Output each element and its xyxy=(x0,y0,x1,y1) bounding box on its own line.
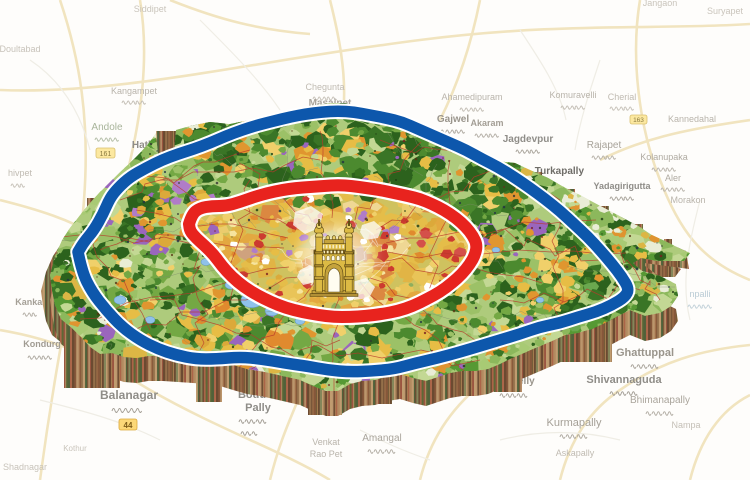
svg-text:Kurmapally: Kurmapally xyxy=(546,417,602,429)
svg-text:44: 44 xyxy=(124,421,133,430)
svg-text:Suryapet: Suryapet xyxy=(707,6,744,16)
svg-text:Kolanupaka: Kolanupaka xyxy=(640,152,688,162)
svg-text:Nampa: Nampa xyxy=(671,420,700,430)
svg-text:Shadnagar: Shadnagar xyxy=(3,462,47,472)
svg-text:Ghattuppal: Ghattuppal xyxy=(616,347,674,359)
svg-text:Rajapet: Rajapet xyxy=(587,140,622,151)
svg-text:npalli: npalli xyxy=(689,289,710,299)
svg-text:Andole: Andole xyxy=(91,122,123,133)
svg-text:Kangampet: Kangampet xyxy=(111,86,158,96)
svg-text:Shivannaguda: Shivannaguda xyxy=(586,374,662,386)
svg-text:Ahamedipuram: Ahamedipuram xyxy=(441,92,502,102)
svg-text:Kannedahal: Kannedahal xyxy=(668,114,716,124)
svg-text:Kankal: Kankal xyxy=(15,297,45,307)
svg-text:Kothur: Kothur xyxy=(63,444,87,453)
svg-text:Gajwel: Gajwel xyxy=(437,114,469,125)
svg-text:Venkat: Venkat xyxy=(312,437,340,447)
svg-text:Bhimanapally: Bhimanapally xyxy=(630,395,690,406)
svg-text:Amangal: Amangal xyxy=(362,433,401,444)
svg-text:Chegunta: Chegunta xyxy=(305,82,344,92)
svg-text:Yadagirigutta: Yadagirigutta xyxy=(593,181,651,191)
svg-text:Rao Pet: Rao Pet xyxy=(310,449,343,459)
svg-text:Siddipet: Siddipet xyxy=(134,4,167,14)
svg-text:Balanagar: Balanagar xyxy=(100,388,158,402)
svg-text:Kondurg: Kondurg xyxy=(23,339,61,349)
svg-text:163: 163 xyxy=(633,117,644,124)
svg-text:161: 161 xyxy=(100,151,112,158)
svg-text:Komuravelli: Komuravelli xyxy=(549,90,596,100)
svg-text:Akaram: Akaram xyxy=(470,118,503,128)
svg-text:Morakon: Morakon xyxy=(670,195,705,205)
svg-text:Doultabad: Doultabad xyxy=(0,44,41,54)
svg-text:Pally: Pally xyxy=(245,402,272,414)
svg-text:Aler: Aler xyxy=(665,173,681,183)
svg-text:Cherial: Cherial xyxy=(608,92,637,102)
svg-text:Jagdevpur: Jagdevpur xyxy=(503,134,554,145)
svg-text:Jangaon: Jangaon xyxy=(643,0,678,8)
svg-text:Askapally: Askapally xyxy=(556,448,595,458)
svg-text:hivpet: hivpet xyxy=(8,168,33,178)
